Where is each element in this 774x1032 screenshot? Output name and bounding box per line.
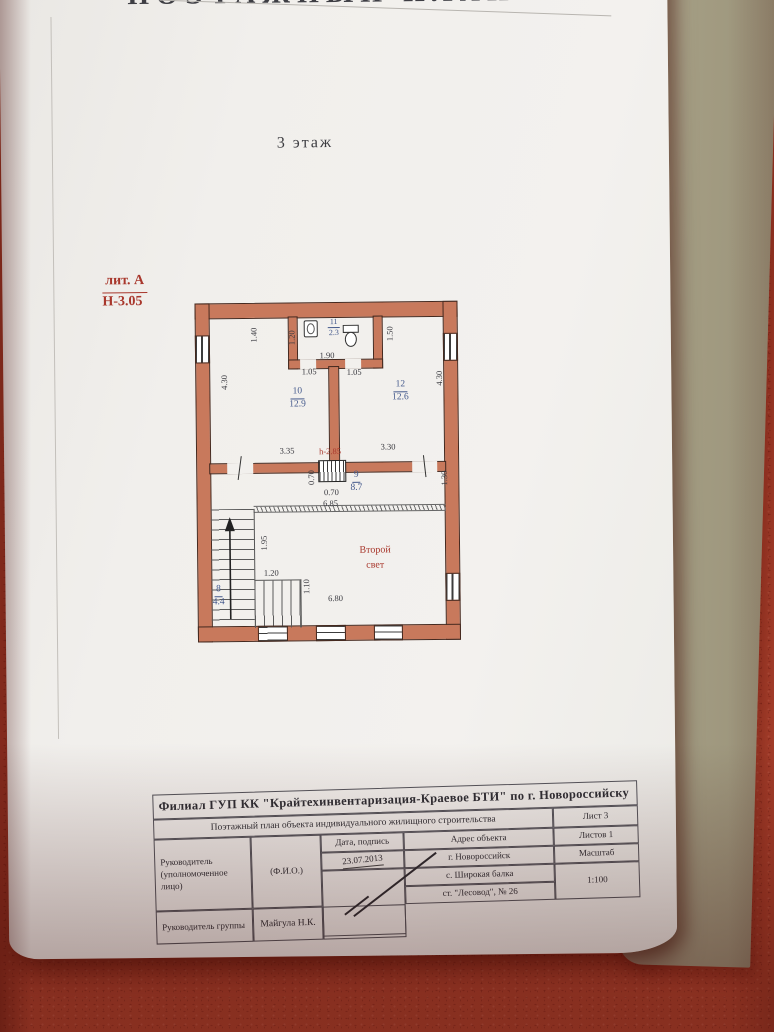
signature-cell-lower: [323, 904, 407, 939]
liter-annotation: лит. А Н-3.05: [102, 272, 147, 312]
window: [444, 334, 457, 360]
dim-label: 1.05: [296, 367, 322, 376]
window: [375, 625, 402, 639]
room-area: 8.7: [350, 483, 362, 493]
dim-label: 1.10: [302, 574, 311, 600]
room-label-10: 10 12.9: [284, 386, 310, 411]
date-value: 23.07.2013: [342, 852, 384, 869]
room-area: 12.9: [289, 399, 306, 409]
room-number: 9: [352, 470, 361, 483]
dim-label: 1.95: [260, 530, 269, 556]
scale-value-cell: 1:100: [554, 861, 640, 900]
dim-label: 0.70: [307, 464, 316, 490]
dim-label: 3.30: [375, 442, 401, 451]
room-label-8: 8 4.4: [206, 584, 230, 609]
sheet-number-cell: Лист 3: [553, 805, 639, 828]
role2-cell: Руководитель группы: [156, 909, 254, 945]
document-sheet: ПОЭТАЖНЫЙ ПЛАН 3 этаж лит. А Н-3.05: [0, 0, 677, 959]
staircase-lower-flight: [254, 579, 302, 627]
shaft-hatched-symbol: [318, 460, 346, 482]
room-label-9: 9 8.7: [344, 470, 368, 495]
building-height-label: Н-3.05: [102, 294, 142, 309]
dim-label: 1.50: [385, 321, 394, 347]
room-number: 8: [214, 584, 223, 597]
room-number: 10: [291, 386, 305, 399]
dim-label: 1.40: [249, 322, 258, 348]
dim-label: 0.70: [318, 488, 344, 497]
fio-label-cell: (Ф.И.О.): [251, 835, 323, 909]
address-line-cell: ст. "Лесовод", № 26: [405, 882, 555, 904]
room-area: 2.3: [329, 328, 339, 337]
dim-label: 4.30: [435, 365, 444, 391]
dim-label: 1.20: [287, 325, 296, 351]
room-area: 12.6: [392, 392, 409, 402]
dim-label: 4.30: [220, 369, 229, 395]
room-number: 12: [394, 379, 408, 392]
dim-label: 1.05: [341, 368, 367, 377]
window: [317, 626, 345, 640]
room-label-12: 12 12.6: [387, 379, 413, 404]
dim-label: 3.35: [274, 446, 300, 455]
light-partition-line: [254, 504, 446, 513]
window: [259, 627, 287, 641]
window: [446, 574, 459, 600]
second-light-annotation: Второй свет: [343, 542, 407, 573]
page-frame-left-line: [50, 17, 59, 739]
dim-label: 6.80: [323, 594, 349, 603]
ceiling-height-label: h-2.85: [310, 447, 350, 456]
second-light-word2: свет: [366, 560, 384, 571]
window: [196, 336, 209, 362]
floor-plan-drawing: 1.40 1.20 1.90 1.50 1.05 1.05 4.30 4.30 …: [195, 302, 460, 642]
wall-top: [195, 302, 456, 319]
toilet-bowl-icon: [345, 332, 357, 347]
liter-label: лит. А: [102, 272, 147, 293]
washbasin-icon: [304, 320, 318, 337]
dim-label: 6.85: [318, 499, 344, 508]
floor-label: 3 этаж: [277, 134, 333, 153]
fio2-cell: Майгула Н.К.: [253, 907, 324, 942]
dim-label: 1.90: [314, 351, 340, 360]
room-area: 4.4: [213, 597, 225, 607]
dim-label: 1.20: [258, 569, 284, 578]
title-block-table: Филиал ГУП КК "Крайтехинвентаризация-Кра…: [152, 780, 641, 944]
room-number: 11: [328, 317, 340, 328]
room-label-11: 11 2.3: [324, 317, 344, 338]
role1-cell: Руководитель (уполномоченное лицо): [154, 837, 253, 912]
dim-label: 1.30: [440, 465, 449, 491]
second-light-word1: Второй: [359, 544, 390, 555]
